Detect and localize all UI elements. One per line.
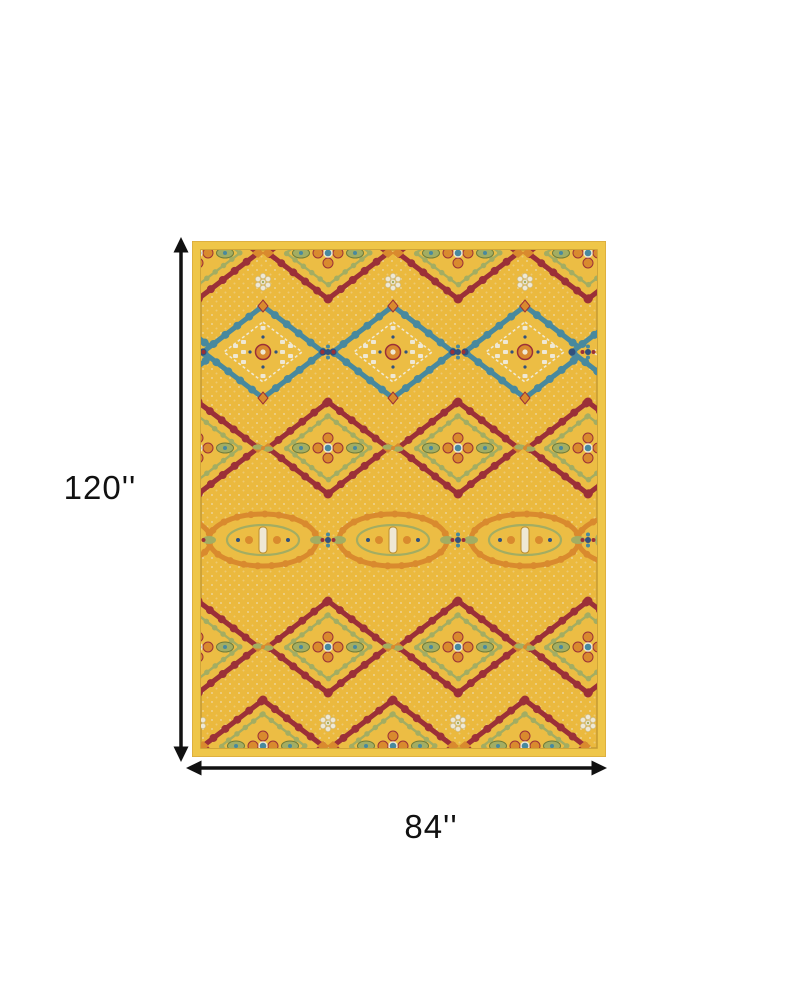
- width-dimension-label: 84'': [366, 808, 496, 846]
- width-dimension-arrow: [185, 759, 608, 777]
- height-dimension-label: 120'': [35, 469, 165, 507]
- rug-artwork: [192, 241, 606, 757]
- height-dimension-arrow: [172, 236, 190, 763]
- rug-size-diagram: 120'' 84'': [0, 0, 797, 1000]
- rug-image: [192, 241, 606, 757]
